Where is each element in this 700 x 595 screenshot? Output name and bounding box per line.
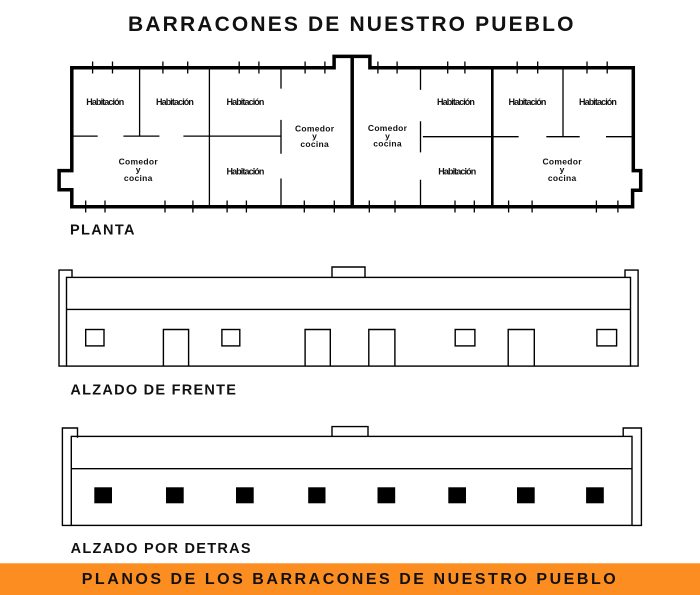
svg-text:Habitación: Habitación	[508, 97, 545, 107]
svg-text:BARRACONES DE NUESTRO PUEBLO: BARRACONES DE NUESTRO PUEBLO	[128, 13, 576, 36]
svg-text:ALZADO DE FRENTE: ALZADO DE FRENTE	[70, 382, 237, 398]
svg-text:cocina: cocina	[124, 173, 153, 183]
svg-text:Habitación: Habitación	[579, 97, 616, 107]
svg-text:Habitación: Habitación	[226, 167, 263, 177]
svg-text:cocina: cocina	[548, 173, 577, 183]
svg-text:cocina: cocina	[300, 139, 329, 149]
svg-text:Habitación: Habitación	[438, 167, 475, 177]
svg-text:Habitación: Habitación	[156, 97, 193, 107]
svg-text:PLANOS DE LOS BARRACONES DE NU: PLANOS DE LOS BARRACONES DE NUESTRO PUEB…	[82, 571, 619, 588]
svg-text:cocina: cocina	[373, 139, 402, 149]
svg-text:PLANTA: PLANTA	[70, 223, 136, 239]
svg-text:Habitación: Habitación	[86, 97, 123, 107]
svg-text:ALZADO POR DETRAS: ALZADO POR DETRAS	[71, 541, 252, 557]
svg-text:Habitación: Habitación	[437, 97, 474, 107]
svg-text:Habitación: Habitación	[226, 97, 263, 107]
